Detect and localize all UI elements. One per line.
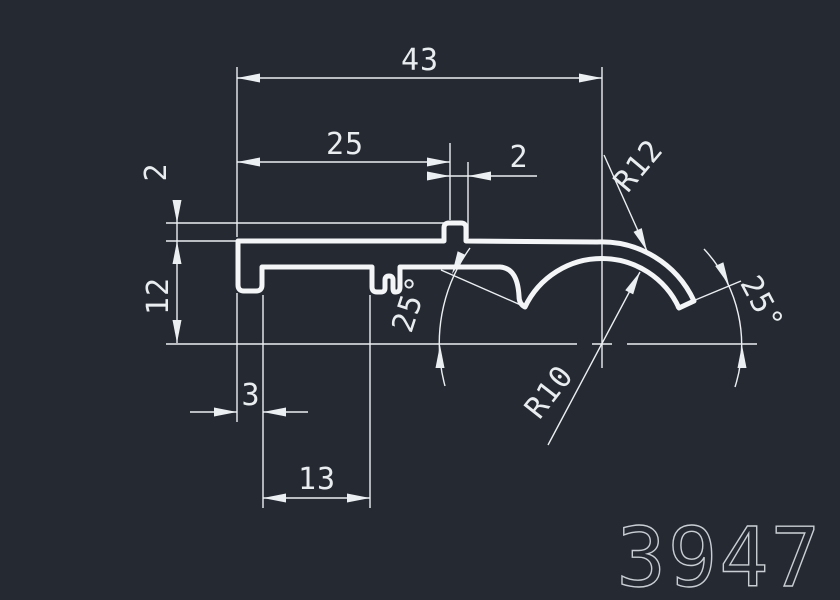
cad-drawing-canvas: 43 25 2 2 12 3 13 R12 R10 25° 25° 3947 [0,0,840,600]
foot-spacing-label: 13 [298,462,336,497]
inner-radius-label: R10 [518,359,581,426]
tab-height-label: 2 [139,162,174,181]
outer-radius-label: R12 [607,133,671,199]
tab-width-label: 2 [509,140,528,175]
profile-drawing: 43 25 2 2 12 3 13 R12 R10 25° 25° 3947 [0,0,840,600]
upper-width-label: 25 [326,127,364,162]
profile-outline [238,223,694,308]
part-number-label: 3947 [617,511,822,600]
foot-width-label: 3 [241,378,260,413]
leader-inner-radius [548,272,640,445]
profile-height-label: 12 [141,277,176,315]
overall-width-label: 43 [401,43,439,78]
